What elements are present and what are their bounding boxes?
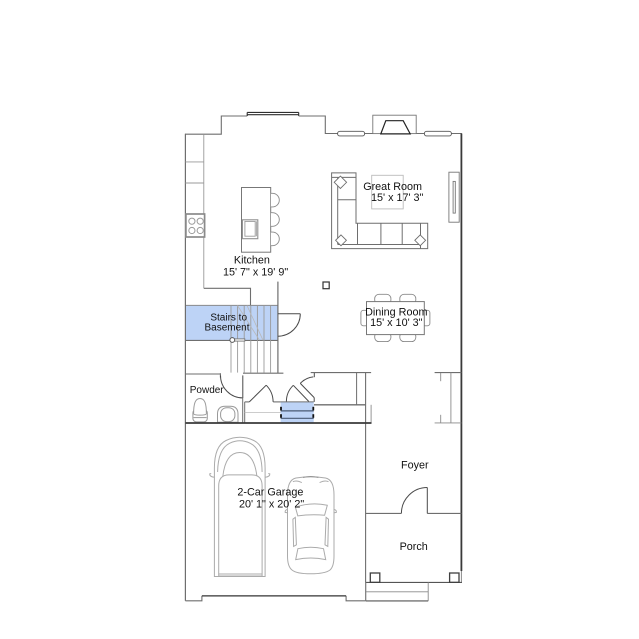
svg-text:2-Car Garage: 2-Car Garage [237,486,303,498]
svg-text:Kitchen: Kitchen [234,254,270,266]
svg-text:Foyer: Foyer [401,460,429,472]
svg-text:15' 7" x 19' 9": 15' 7" x 19' 9" [223,266,288,278]
svg-text:Porch: Porch [400,541,428,553]
svg-text:Basement: Basement [204,323,249,334]
svg-text:Powder: Powder [190,385,225,396]
svg-text:15' x 17' 3": 15' x 17' 3" [371,192,424,204]
svg-text:15' x 10' 3": 15' x 10' 3" [370,317,423,329]
svg-text:20' 1" x 20' 2": 20' 1" x 20' 2" [239,498,304,510]
